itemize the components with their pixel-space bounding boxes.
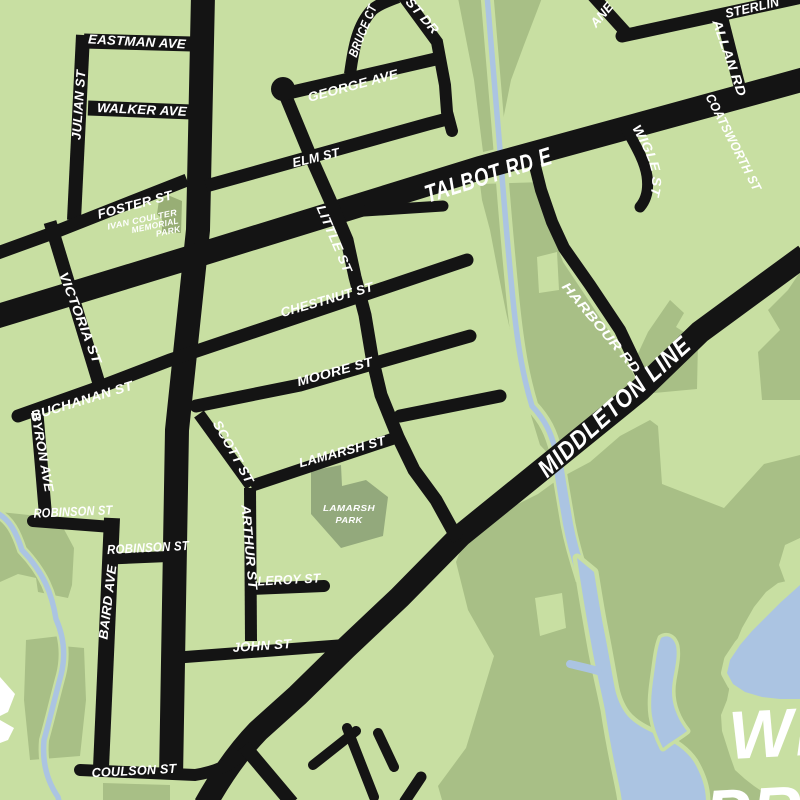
svg-text:WH: WH xyxy=(727,692,800,774)
svg-text:LAMARSH: LAMARSH xyxy=(323,503,376,513)
svg-text:PARK: PARK xyxy=(336,515,364,525)
